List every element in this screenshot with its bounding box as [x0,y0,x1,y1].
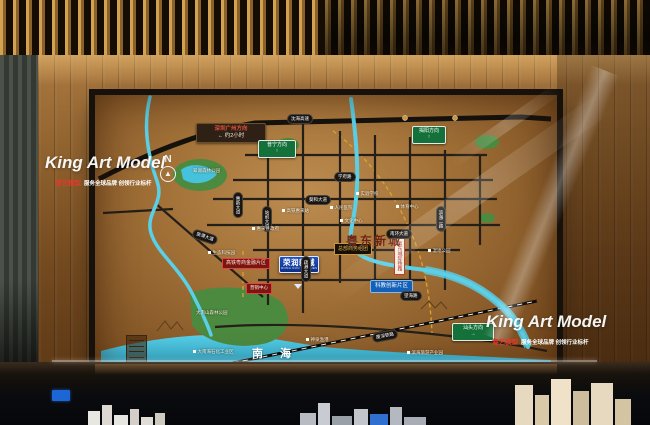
poi-label-park: 大南山森林公园 [196,311,228,316]
board-reflection [95,364,557,375]
poi-marker-icon [193,350,196,353]
map-legend-seal [126,335,147,363]
road-pill: 葵和大道 [305,195,331,205]
scale-model-buildings-right [515,376,631,425]
poi-label-park: 翠湖森林公园 [193,169,220,174]
project-pointer [294,284,302,289]
road-pill: 惠新大道 [233,192,243,218]
poi-marker-icon [396,205,399,208]
poi-label: 高铁惠来站 [282,209,309,214]
poi-marker-icon [208,251,211,254]
project-name: 荣润新城 [281,259,317,267]
road-pill: 望海路 [400,291,422,301]
up-arrow-icon: ↑ [261,149,293,155]
project-subtitle: RONG RUN XIN CHENG [281,267,317,271]
road-pill: 沈海高速 [287,114,313,124]
poi-label: 神泉渔港 [306,338,329,343]
sea-label: 南 海 [252,345,298,361]
poi-label: 湿地公园 [428,249,451,254]
zone-sign-finance-district: 高铁粤商金融片区 [222,258,270,269]
poi-label: 滨海旅游产业园 [407,351,443,356]
poi-marker-icon [252,227,255,230]
watermark-right-tagline: 港艺模型服务全球品牌 创领行业标杆 [492,336,589,346]
model-tag [52,390,70,401]
direction-sign-shenzhen-guangzhou: 深圳广州方向 ← 约2小时 [196,123,266,143]
poi-marker-icon [330,206,333,209]
poi-label: 人民医院 [330,206,353,211]
poi-marker-icon [428,249,431,252]
poi-marker-icon [282,209,285,212]
road-pill: 学府路 [334,172,356,182]
poi-label: 文化中心 [340,219,363,224]
direction-sign-puning: 普宁方向 ↑ [258,140,296,158]
poi-marker-icon [407,351,410,354]
zone-sign-sales-center: 营销中心 [246,283,272,294]
poi-marker-icon [340,219,343,222]
direction-sign-jieyang: 揭阳方向 ↑ [412,126,446,144]
scale-model-buildings-left [88,398,165,425]
poi-label: 实验学校 [356,192,379,197]
poi-label: 生态科技园 [208,251,235,256]
poi-label: 惠来县政府 [252,227,279,232]
poi-marker-icon [356,192,359,195]
project-marker: 荣润新城 RONG RUN XIN CHENG [279,256,319,273]
poi-label: 体育中心 [396,205,419,210]
watermark-right: King Art Model [486,312,606,332]
poi-marker-icon [306,338,309,341]
watermark-left: King Art Model [45,153,165,173]
watermark-left-tagline: 港艺模型服务全球品牌 创领行业标杆 [55,177,152,187]
road-pill: 疏港大道 [301,256,311,282]
showroom-photo: N ▲ 深圳广州方向 ← 约2小时 普宁方向 ↑ 揭阳方向 ↑ 汕头方向 → 高… [0,0,650,425]
up-arrow-icon: ↑ [415,135,443,141]
glass-edge-highlight [52,360,597,362]
scale-model-buildings-center [300,393,426,425]
poi-label: 大南海石化工业区 [193,350,234,355]
